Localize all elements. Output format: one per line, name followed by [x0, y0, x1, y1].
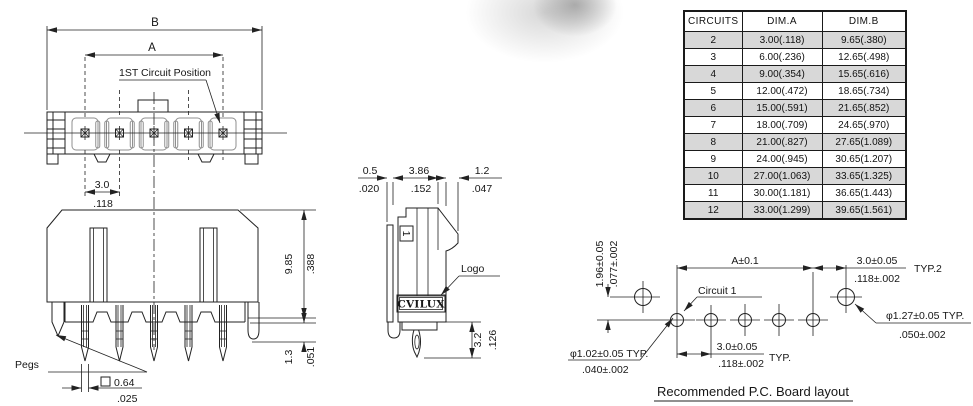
table-cell: 21.65(.852) — [822, 100, 906, 117]
circuits-table-body: 23.00(.118)9.65(.380)36.00(.236)12.65(.4… — [684, 32, 906, 220]
tail-square-mm: 0.64 — [114, 377, 135, 389]
table-row: 924.00(.945)30.65(1.207) — [684, 151, 906, 168]
table-cell: 6.00(.236) — [742, 49, 822, 66]
table-cell: 24.65(.970) — [822, 117, 906, 134]
tail-mm: 3.2 — [472, 333, 484, 348]
table-cell: 24.00(.945) — [742, 151, 822, 168]
latch-mm: 1.2 — [475, 165, 490, 177]
table-cell: 36.65(1.443) — [822, 185, 906, 202]
tail-square-in: .025 — [117, 393, 138, 405]
table-cell: 3 — [684, 49, 742, 66]
pcb-pitch-in: .118±.002 — [718, 358, 764, 370]
first-circuit-label: 1ST Circuit Position — [119, 67, 211, 79]
pcb-pitch-note: TYP. — [769, 352, 791, 364]
table-header-row: CIRCUITS DIM.A DIM.B — [684, 11, 906, 32]
dim-b: B — [47, 17, 262, 110]
first-circuit-callout: 1ST Circuit Position — [119, 67, 220, 123]
logo-text: CVILUX — [397, 299, 445, 311]
profile-peg — [388, 322, 400, 338]
table-header-dim-a: DIM.A — [742, 11, 822, 32]
table-row: 821.00(.827)27.65(1.089) — [684, 134, 906, 151]
table-cell: 9.65(.380) — [822, 32, 906, 49]
table-cell: 33.65(1.325) — [822, 168, 906, 185]
square-symbol — [101, 377, 110, 386]
table-cell: 12.65(.498) — [822, 49, 906, 66]
pitch-in: .118 — [93, 198, 113, 210]
small-hole-in: .040±.002 — [582, 364, 629, 376]
table-row: 615.00(.591)21.65(.852) — [684, 100, 906, 117]
profile-view: 1 CVILUX 0.5 .020 3.86 — [358, 165, 502, 358]
end-pitch-in: .118±.002 — [854, 273, 900, 285]
dim-row-offset: 1.96±0.05 .077±.002 — [594, 241, 620, 333]
logo-box: CVILUX — [397, 295, 445, 312]
table-cell: 39.65(1.561) — [822, 202, 906, 220]
wall-in: .020 — [359, 183, 380, 195]
depth-mm: 3.86 — [409, 165, 430, 177]
dim-pcb-pitch: 3.0±0.05 .118±.002 TYP. — [677, 341, 791, 370]
table-cell: 18.00(.709) — [742, 117, 822, 134]
table-cell: 15.65(.616) — [822, 66, 906, 83]
table-cell: 4 — [684, 66, 742, 83]
table-cell: 6 — [684, 100, 742, 117]
pcb-layout: A±0.1 3.0±0.05 .118±.002 TYP.2 1.96±0.05… — [568, 241, 971, 401]
profile-top-dims: 0.5 .020 3.86 .152 1.2 .047 — [358, 165, 502, 231]
right-peg — [248, 302, 259, 339]
circuit1-label: Circuit 1 — [698, 285, 737, 297]
circuit-mark: 1 — [400, 231, 412, 237]
table-cell: 30.00(1.181) — [742, 185, 822, 202]
table-cell: 3.00(.118) — [742, 32, 822, 49]
latch-in: .047 — [472, 183, 493, 195]
table-cell: 2 — [684, 32, 742, 49]
pegs-label: Pegs — [15, 359, 39, 371]
table-row: 1233.00(1.299)39.65(1.561) — [684, 202, 906, 220]
table-cell: 27.65(1.089) — [822, 134, 906, 151]
table-header-circuits: CIRCUITS — [684, 11, 742, 32]
standoff-in: .051 — [305, 347, 317, 368]
small-hole-mm: φ1.02±0.05 TYP. — [570, 348, 648, 360]
table-cell: 27.00(1.063) — [742, 168, 822, 185]
left-peg — [52, 302, 64, 336]
large-hole-in: .050±.002 — [899, 329, 946, 341]
pcb-pitch-mm: 3.0±0.05 — [717, 341, 758, 353]
circuit-holes — [597, 265, 828, 358]
table-cell: 12.00(.472) — [742, 83, 822, 100]
end-pitch-note: TYP.2 — [914, 263, 942, 275]
table-cell: 10 — [684, 168, 742, 185]
table-row: 718.00(.709)24.65(.970) — [684, 117, 906, 134]
front-view: B A 1ST Circuit Position 3.0 .118 — [24, 17, 287, 210]
small-hole-callout: φ1.02±0.05 TYP. .040±.002 — [568, 318, 673, 376]
end-pitch-mm: 3.0±0.05 — [857, 255, 898, 267]
height-in: .388 — [305, 254, 317, 275]
table-cell: 21.00(.827) — [742, 134, 822, 151]
dim-a: A — [85, 42, 223, 55]
table-row: 49.00(.354)15.65(.616) — [684, 66, 906, 83]
large-hole-callout: φ1.27±0.05 TYP. .050±.002 — [855, 304, 971, 341]
tail-in: .126 — [487, 330, 499, 351]
wall-mm: 0.5 — [363, 165, 378, 177]
standoff-mm: 1.3 — [283, 350, 295, 365]
table-cell: 33.00(1.299) — [742, 202, 822, 220]
table-cell: 30.65(1.207) — [822, 151, 906, 168]
dim-end-pitch: 3.0±0.05 .118±.002 TYP.2 — [813, 255, 942, 285]
dim-b-label: B — [151, 17, 159, 29]
pitch-mm: 3.0 — [95, 179, 110, 191]
table-cell: 7 — [684, 117, 742, 134]
table-row: 1027.00(1.063)33.65(1.325) — [684, 168, 906, 185]
pcb-dim-a: A±0.1 — [731, 255, 759, 267]
dim-tail: 3.2 .126 — [424, 322, 499, 358]
connector-technical-drawing: B A 1ST Circuit Position 3.0 .118 — [0, 0, 973, 406]
logo-callout: Logo — [441, 263, 500, 295]
dim-a-label: A — [148, 42, 156, 54]
row-offset-in: .077±.002 — [608, 241, 620, 288]
pcb-title-text: Recommended P.C. Board layout — [657, 384, 849, 399]
height-mm: 9.85 — [283, 254, 295, 275]
circuits-table: CIRCUITS DIM.A DIM.B 23.00(.118)9.65(.38… — [683, 10, 907, 220]
table-header-dim-b: DIM.B — [822, 11, 906, 32]
table-row: 36.00(.236)12.65(.498) — [684, 49, 906, 66]
table-row: 512.00(.472)18.65(.734) — [684, 83, 906, 100]
front-wall — [387, 225, 393, 322]
table-cell: 15.00(.591) — [742, 100, 822, 117]
table-row: 1130.00(1.181)36.65(1.443) — [684, 185, 906, 202]
row-offset-mm: 1.96±0.05 — [594, 241, 606, 288]
table-cell: 11 — [684, 185, 742, 202]
logo-label: Logo — [461, 263, 485, 275]
dim-pcb-a: A±0.1 — [677, 255, 813, 268]
dim-standoff: 1.3 .051 — [250, 313, 317, 367]
table-cell: 5 — [684, 83, 742, 100]
table-cell: 9 — [684, 151, 742, 168]
table-cell: 12 — [684, 202, 742, 220]
circuit1-callout: Circuit 1 — [684, 285, 762, 311]
table-cell: 18.65(.734) — [822, 83, 906, 100]
large-hole-mm: φ1.27±0.05 TYP. — [886, 310, 964, 322]
table-cell: 9.00(.354) — [742, 66, 822, 83]
depth-in: .152 — [411, 183, 432, 195]
dim-pin-square: 0.64 .025 — [62, 364, 142, 405]
pcb-title: Recommended P.C. Board layout — [654, 384, 853, 401]
dim-pitch-front: 3.0 .118 — [85, 179, 120, 210]
table-cell: 8 — [684, 134, 742, 151]
table-row: 23.00(.118)9.65(.380) — [684, 32, 906, 49]
